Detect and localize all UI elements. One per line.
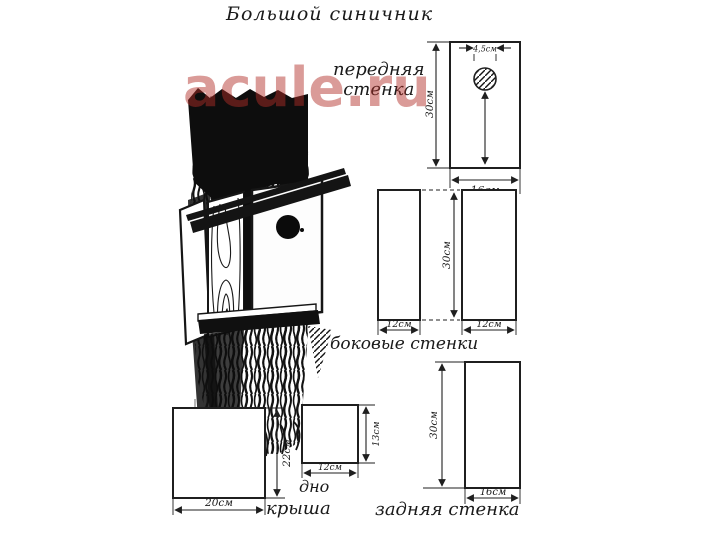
side-walls-label: боковые стенки [330,334,478,354]
back-wall-width-dim: 16см [480,487,507,498]
roof-width-dim: 20см [204,497,233,509]
roof-outline [173,408,265,498]
bottom-outline [302,405,358,463]
roof-label: крыша [266,498,331,519]
entrance-hole [276,215,300,239]
hole-diameter-dim: 4,5см [472,45,497,54]
front-wall-drawing: 30см 4,5см 16см [425,28,575,203]
roof-height-dim: 22см [281,439,293,468]
knot-dot [300,228,304,232]
bottom-width-dim: 12см [318,463,342,473]
back-wall-outline [465,362,520,488]
side-wall-left-width-dim: 12см [386,319,411,330]
side-wall-right-width-dim: 12см [476,319,501,330]
watermark-text: acule.ru [183,56,431,119]
bottom-height-dim: 13см [371,421,382,446]
bottom-label: дно [299,477,329,496]
side-wall-right-outline [462,190,516,320]
entrance-hole-drawing [474,68,496,90]
shelf-right-hatch [308,326,332,378]
side-walls-height-dim: 30см [441,241,453,269]
page-title: Большой синичник [226,3,433,25]
side-wall-left-outline [378,190,420,320]
scanned-birdhouse-plan: Большой синичник acule.ru [0,0,720,540]
back-wall-label: задняя стенка [375,499,520,520]
back-wall-height-dim: 30см [428,411,440,439]
